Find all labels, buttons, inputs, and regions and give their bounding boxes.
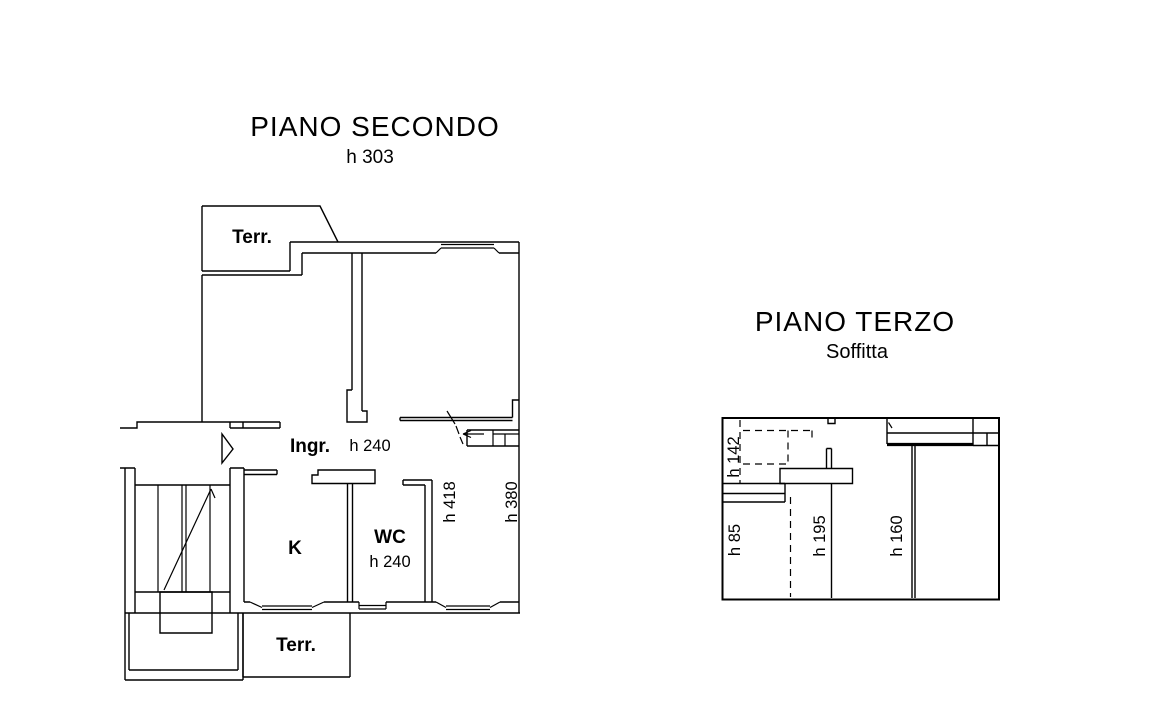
wc-east-wall	[403, 480, 432, 602]
stair-head-stub	[827, 449, 832, 469]
height-195-label: h 195	[811, 515, 829, 556]
upper-rooms-divider-wall	[347, 253, 367, 422]
right-window	[436, 602, 500, 610]
plan-terzo: PIANO TERZO Soffitta h 142 h 85 h 195 h …	[723, 306, 1000, 600]
stairwell-west-wall	[120, 468, 135, 613]
low-height-dashed-zone	[740, 420, 812, 483]
balcony-inner	[129, 613, 238, 670]
plan-secondo-title: PIANO SECONDO	[250, 111, 499, 142]
upper-right-room-south-wall	[400, 400, 519, 424]
north-window	[436, 245, 499, 254]
north-wall	[290, 242, 519, 253]
plan-terzo-title: PIANO TERZO	[755, 306, 955, 337]
kitchen-window	[250, 602, 324, 610]
door-swing-dashes	[456, 426, 463, 444]
entrance-label: Ingr.	[290, 436, 330, 457]
beam-tick	[889, 423, 893, 429]
partition-160-right	[912, 446, 915, 598]
stair-direction-arrow	[164, 489, 215, 590]
plan-secondo: PIANO SECONDO h 303 Terr.	[120, 111, 521, 680]
entrance-door-leaf	[222, 434, 233, 463]
wc-east-wall-lines	[403, 480, 432, 602]
height-85-label: h 85	[726, 524, 744, 556]
winder-treads	[493, 430, 519, 446]
roof-beam	[887, 418, 999, 446]
wc-label: WC	[374, 527, 406, 548]
hall-north-wall	[120, 422, 280, 428]
height-418-label: h 418	[441, 481, 459, 522]
room-south-wall	[400, 418, 513, 421]
height-160-label: h 160	[888, 515, 906, 556]
stair-balcony	[125, 613, 243, 680]
hall-north-wall-lines	[120, 422, 280, 428]
kitchen-label: K	[288, 538, 302, 559]
south-wall	[125, 602, 520, 613]
stairwell-east-wall	[230, 468, 244, 613]
plan-secondo-height-note: h 303	[346, 147, 394, 168]
height-380-label: h 380	[503, 481, 521, 522]
terrace-bottom-label: Terr.	[276, 635, 316, 656]
stair-head-lower-bar	[723, 484, 786, 503]
wc-window	[359, 602, 386, 609]
stairwell	[120, 468, 244, 633]
terrace-top-label: Terr.	[232, 227, 272, 248]
kitchen-north-wall	[244, 470, 277, 475]
attic-stair	[456, 426, 519, 446]
wc-height-label: h 240	[369, 553, 410, 571]
kitchen-walls	[244, 470, 277, 475]
stair-treads	[158, 485, 210, 592]
entrance-height-label: h 240	[349, 437, 390, 455]
kitchen-wc-wall	[312, 470, 375, 602]
floorplan-drawing: PIANO SECONDO h 303 Terr.	[0, 0, 1154, 725]
pilaster	[513, 400, 520, 418]
kitchen-wc-wall-stem	[348, 484, 353, 603]
floorplan-sheet: PIANO SECONDO h 303 Terr.	[0, 0, 1154, 725]
divider-wall-foot	[347, 390, 367, 422]
divider-wall-lines	[352, 253, 362, 411]
plan-terzo-subtitle: Soffitta	[826, 341, 889, 363]
beam-lines	[887, 418, 999, 446]
dashed-rectangle	[743, 431, 812, 465]
up-arrow	[463, 431, 484, 438]
kitchen-wc-wall-head	[312, 470, 375, 484]
height-142-label: h 142	[725, 436, 743, 477]
stair-head-upper-bar	[780, 469, 853, 484]
